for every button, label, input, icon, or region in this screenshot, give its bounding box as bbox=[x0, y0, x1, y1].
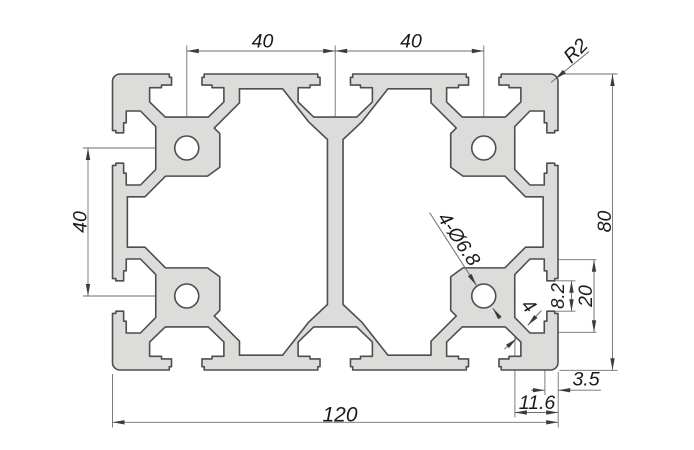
svg-text:40: 40 bbox=[70, 211, 92, 233]
svg-text:40: 40 bbox=[252, 31, 274, 53]
svg-text:3.5: 3.5 bbox=[572, 369, 599, 391]
svg-text:8.2: 8.2 bbox=[547, 282, 568, 308]
svg-text:40: 40 bbox=[400, 31, 422, 53]
svg-text:11.6: 11.6 bbox=[519, 392, 556, 414]
svg-text:20: 20 bbox=[575, 285, 597, 308]
svg-text:80: 80 bbox=[594, 211, 616, 233]
svg-text:120: 120 bbox=[322, 404, 357, 427]
